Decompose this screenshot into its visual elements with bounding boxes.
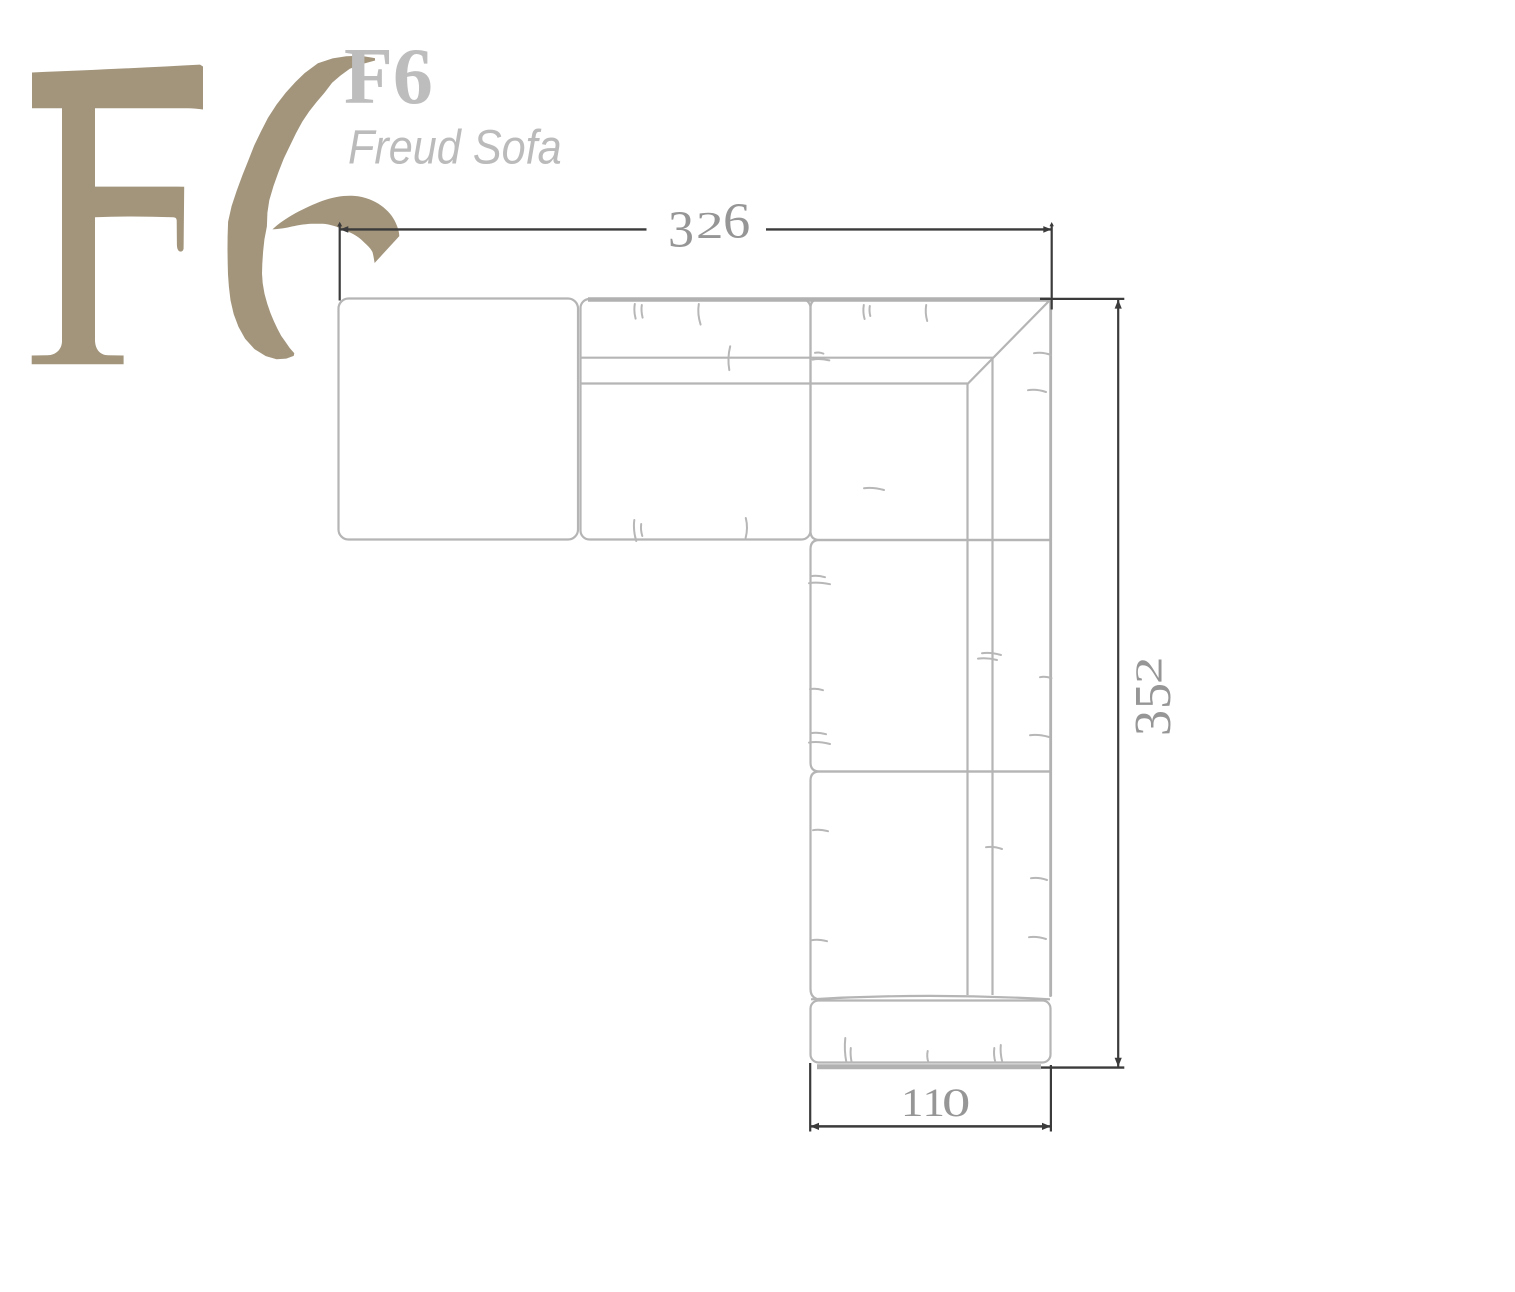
- svg-text:6: 6: [723, 194, 750, 250]
- svg-text:5: 5: [1125, 683, 1182, 709]
- svg-text:1: 1: [901, 1081, 923, 1125]
- svg-text:F6: F6: [344, 33, 433, 121]
- svg-text:2: 2: [696, 205, 724, 247]
- svg-text:Freud Sofa: Freud Sofa: [348, 120, 562, 174]
- svg-text:3: 3: [668, 202, 694, 259]
- svg-text:3: 3: [1125, 710, 1182, 736]
- svg-text:0: 0: [942, 1080, 970, 1125]
- svg-text:2: 2: [1129, 656, 1171, 684]
